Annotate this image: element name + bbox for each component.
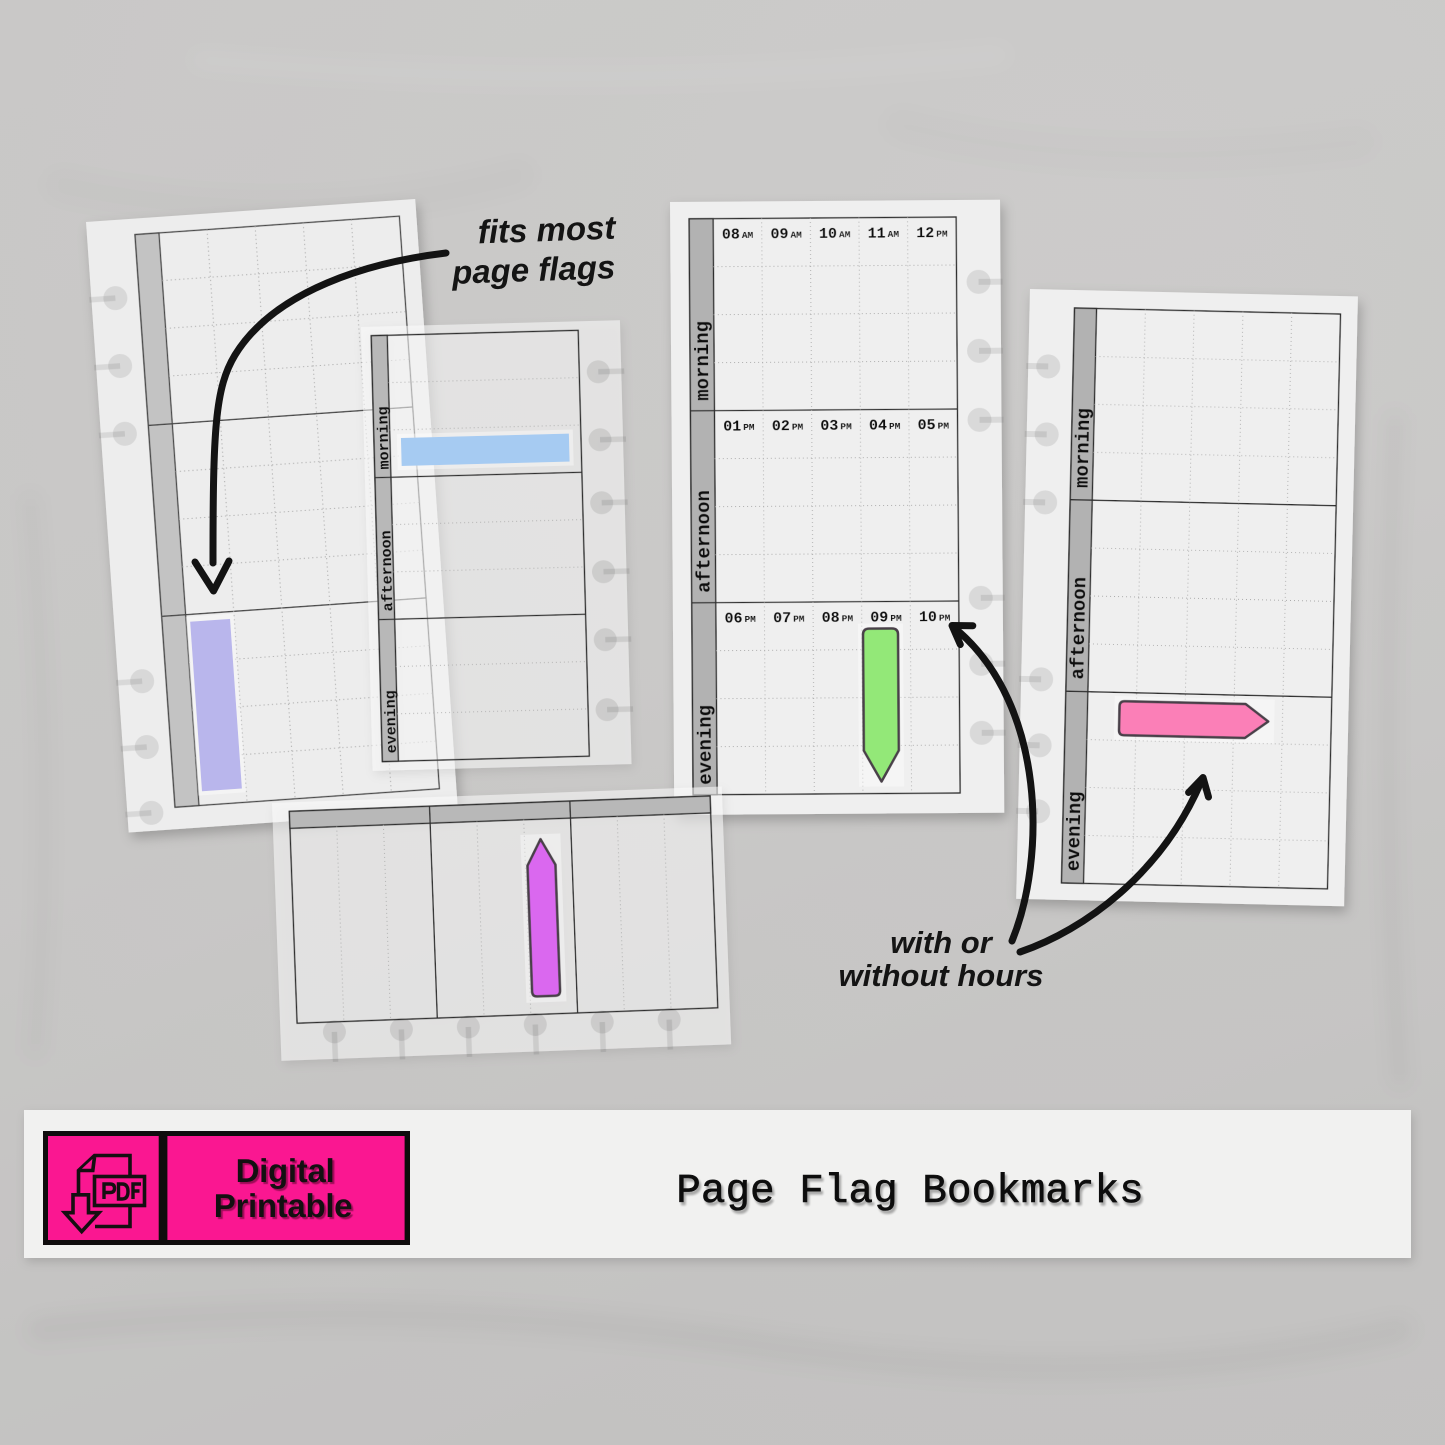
svg-text:afternoon: afternoon [378, 530, 397, 611]
svg-text:afternoon: afternoon [1067, 577, 1091, 680]
svg-text:morning: morning [375, 406, 394, 469]
svg-text:morning: morning [692, 321, 715, 401]
svg-text:morning: morning [1072, 408, 1096, 488]
svg-text:with or: with or [890, 925, 994, 960]
svg-text:fits most: fits most [477, 209, 618, 251]
svg-text:page flags: page flags [450, 248, 615, 291]
svg-text:evening: evening [383, 690, 402, 753]
svg-text:without hours: without hours [839, 958, 1044, 993]
svg-text:afternoon: afternoon [693, 490, 716, 593]
svg-text:evening: evening [1063, 791, 1087, 871]
svg-text:Printable: Printable [214, 1187, 353, 1224]
svg-text:Digital: Digital [236, 1152, 335, 1189]
svg-text:Page Flag Bookmarks: Page Flag Bookmarks [676, 1169, 1144, 1215]
svg-text:evening: evening [695, 705, 718, 785]
